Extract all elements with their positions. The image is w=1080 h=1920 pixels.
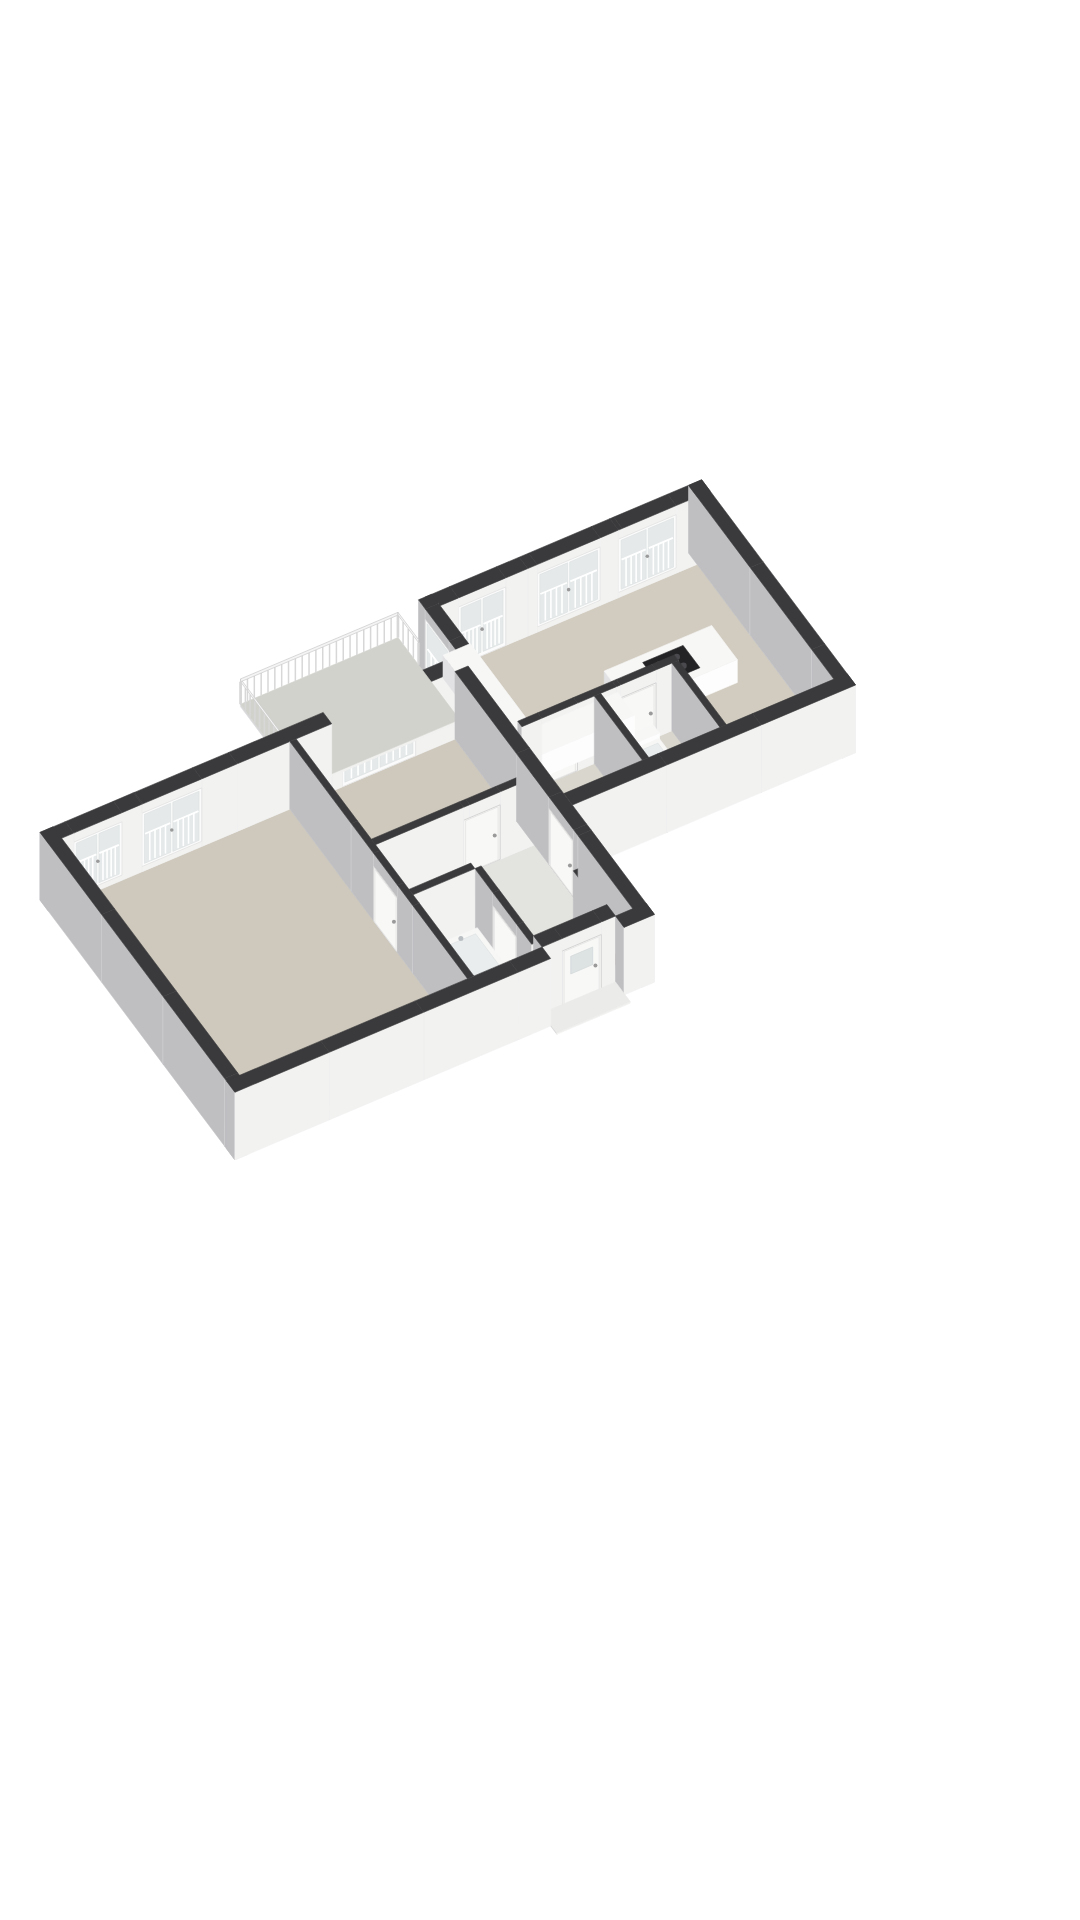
floor-plan-page: 3D floor plan of an apartment — [0, 0, 1080, 1920]
floor-plan-3d-view — [0, 0, 1080, 1920]
wall-l-se-c — [616, 903, 655, 995]
